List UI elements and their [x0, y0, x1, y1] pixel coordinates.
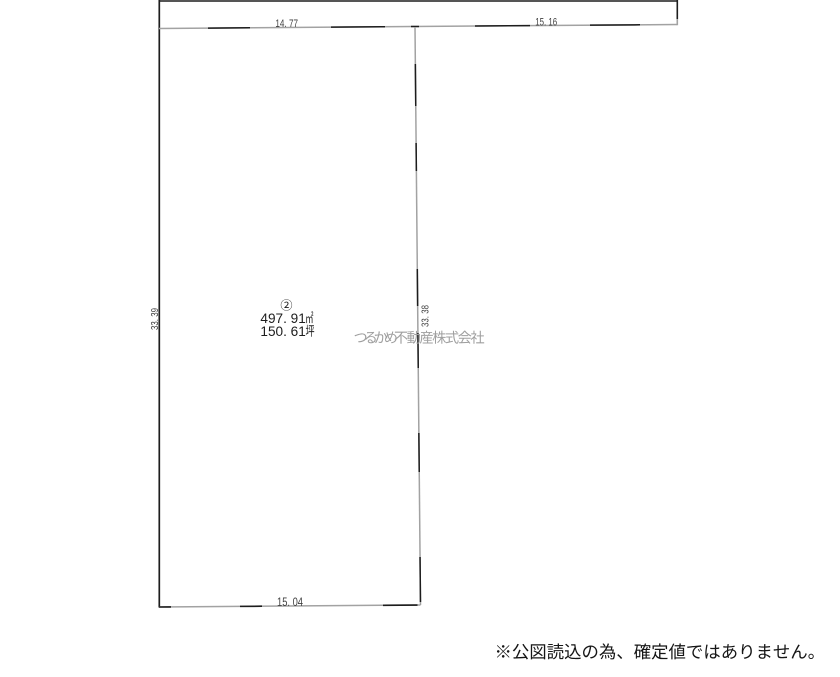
svg-text:33. 38: 33. 38	[419, 305, 431, 327]
svg-text:15. 04: 15. 04	[277, 597, 303, 609]
svg-text:14. 77: 14. 77	[275, 18, 298, 30]
svg-text:33. 39: 33. 39	[149, 308, 161, 330]
svg-text:15. 16: 15. 16	[535, 16, 557, 28]
svg-text:150. 61: 150. 61	[260, 324, 305, 340]
